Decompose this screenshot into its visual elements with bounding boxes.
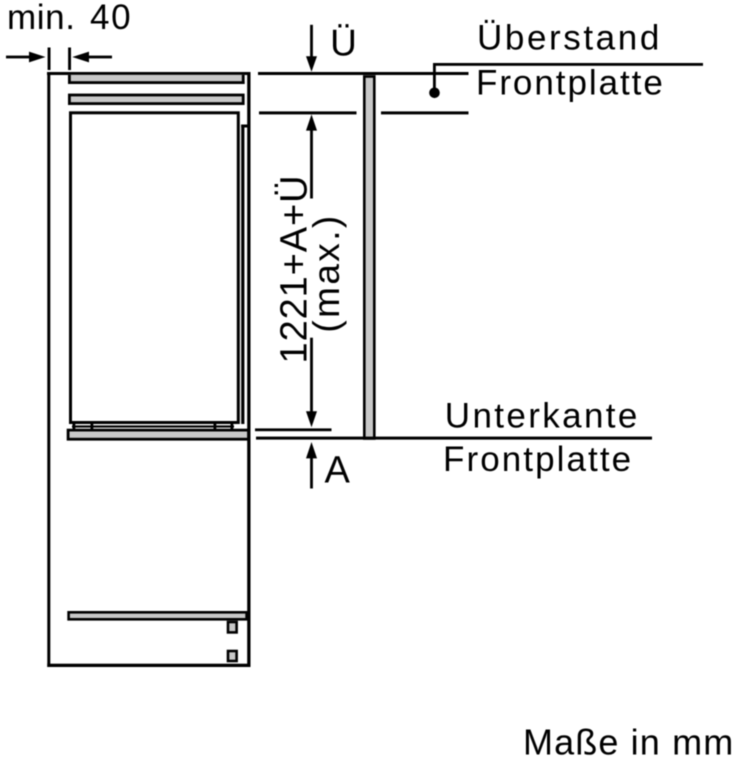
svg-text:(max.): (max.) [306,213,347,332]
svg-text:Frontplatte: Frontplatte [476,64,665,103]
svg-text:min.40: min.40 [7,0,132,37]
svg-text:Maße in mm: Maße in mm [523,722,734,763]
svg-text:Frontplatte: Frontplatte [443,440,633,479]
svg-text:Überstand: Überstand [477,18,662,57]
svg-text:Ü: Ü [330,22,357,63]
svg-text:A: A [325,450,351,492]
svg-text:Unterkante: Unterkante [445,396,640,435]
